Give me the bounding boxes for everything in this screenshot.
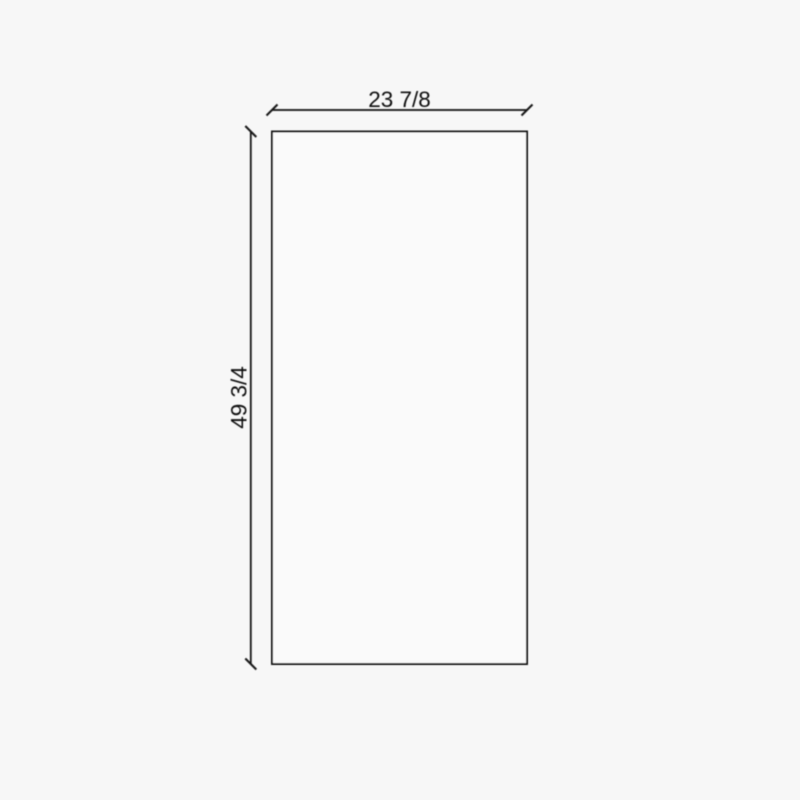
svg-text:49 3/4: 49 3/4 (226, 366, 251, 429)
svg-text:23 7/8: 23 7/8 (368, 87, 431, 112)
